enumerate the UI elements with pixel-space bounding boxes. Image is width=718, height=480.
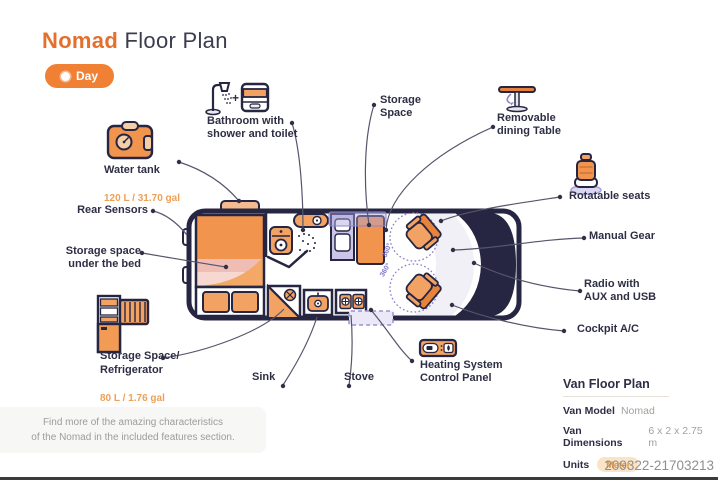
water-tank-title: Water tank <box>104 164 180 177</box>
features-note: Find more of the amazing characteristics… <box>0 407 266 453</box>
heating-system-location <box>349 311 393 325</box>
van-dimensions-value: 6 x 2 x 2.75 m <box>648 425 713 449</box>
van-model-row: Van Model Nomad <box>563 405 713 417</box>
van-info-title: Van Floor Plan <box>563 377 669 397</box>
van-dimensions-row: Van Dimensions 6 x 2 x 2.75 m <box>563 425 713 449</box>
toilet-icon <box>242 84 268 111</box>
rotatable-seat-icon <box>571 154 601 195</box>
note-line-2: of the Nomad in the included features se… <box>31 430 234 446</box>
under-bed-storage-label: Storage space under the bed <box>36 245 141 272</box>
dining-table-label: Removable dining Table <box>497 112 561 139</box>
watermark-number: 209322-21703213 <box>604 458 714 473</box>
heating-panel-icon <box>420 340 456 356</box>
bed <box>196 215 264 287</box>
toilet <box>270 227 292 254</box>
stove-unit <box>336 290 366 313</box>
manual-gear-label: Manual Gear <box>589 230 655 243</box>
removable-table <box>329 212 386 226</box>
cockpit-ac-label: Cockpit A/C <box>577 323 639 336</box>
sink-unit <box>304 290 332 315</box>
rotatable-seats-label: Rotatable seats <box>569 190 650 203</box>
heating-label: Heating System Control Panel <box>420 359 503 386</box>
van-dimensions-label: Van Dimensions <box>563 425 642 449</box>
dining-table-icon <box>499 87 535 112</box>
fridge-title: Storage Space/ Refrigerator <box>100 350 179 377</box>
plus-sign: + <box>232 91 239 105</box>
sink-label: Sink <box>252 371 275 384</box>
storage-space-label: Storage Space <box>380 94 421 121</box>
fridge-capacity: 80 L / 1.76 gal <box>100 393 179 405</box>
floor-plan-page: Nomad Floor Plan Day <box>0 0 718 480</box>
kitchen-corner-unit <box>268 286 300 318</box>
van-model-value: Nomad <box>621 405 655 417</box>
van-model-label: Van Model <box>563 405 615 417</box>
stove-label: Stove <box>344 371 374 384</box>
note-line-1: Find more of the amazing characteristics <box>43 415 223 431</box>
units-label: Units <box>563 459 589 471</box>
rear-sensors-label: Rear Sensors <box>58 204 148 217</box>
shower-icon <box>206 83 232 115</box>
radio-label: Radio with AUX and USB <box>584 278 656 305</box>
bench-seats <box>196 287 264 316</box>
vanity-sink <box>294 214 328 227</box>
bathroom-label: Bathroom with shower and toilet <box>207 115 297 142</box>
